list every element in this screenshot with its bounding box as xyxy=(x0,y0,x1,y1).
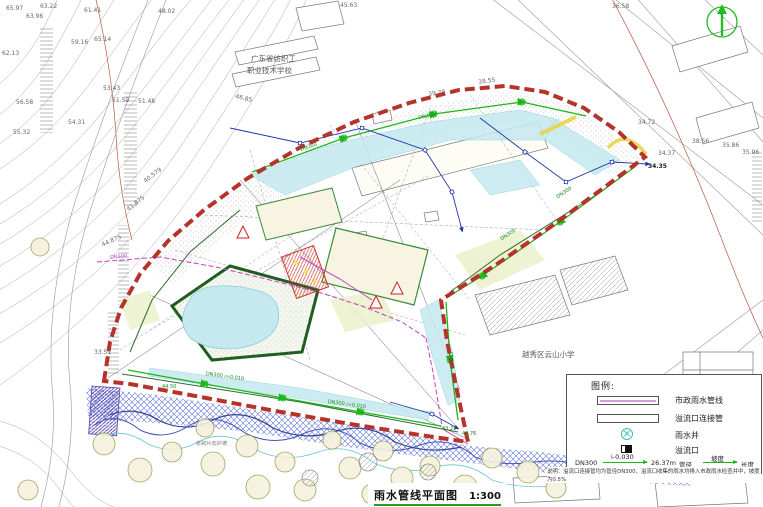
sample-arrow xyxy=(703,462,737,463)
hatched-trees xyxy=(302,453,436,486)
drawing-scale: 1:300 xyxy=(469,491,501,502)
drawing-title-block: 雨水管线平面图 1:300 xyxy=(368,483,507,507)
legend-item-label: 溢流口连接管 xyxy=(675,413,723,424)
municipal-pipe-symbol xyxy=(597,396,659,405)
overflow-outlet-symbol xyxy=(621,445,632,453)
legend: 图例: 市政雨水管线 溢流口连接管 雨水井 溢流口 DN300 i-0.030 … xyxy=(566,374,762,474)
culvert-block xyxy=(89,386,120,436)
rain-well-symbol xyxy=(621,428,633,440)
sample-diameter: DN300 xyxy=(575,459,597,467)
sample-slope: i-0.030 xyxy=(611,453,634,461)
legend-title: 图例: xyxy=(591,379,615,392)
legend-item-label: 市政雨水管线 xyxy=(675,395,723,406)
legend-item-overflow-connector: 溢流口连接管 xyxy=(567,411,761,427)
overflow-connector-symbol xyxy=(597,414,659,423)
site-plan-screenshot: 65.9763.2263.9661.4165.1459.1662.1356.58… xyxy=(0,0,763,507)
legend-note: 说明：溢流口连接管均为管径DN300，溢流口收集的雨水均排入市政雨水检查井中，坡… xyxy=(547,467,761,483)
legend-item-label: 雨水井 xyxy=(675,430,699,441)
sample-line xyxy=(603,462,647,463)
drawing-title: 雨水管线平面图 xyxy=(374,489,458,502)
title-underline xyxy=(374,504,501,506)
sample-length: 26.37m xyxy=(651,459,676,467)
legend-item-rain-well: 雨水井 xyxy=(567,428,761,444)
legend-item-municipal-pipe: 市政雨水管线 xyxy=(567,393,761,409)
north-arrow-icon xyxy=(707,4,737,37)
